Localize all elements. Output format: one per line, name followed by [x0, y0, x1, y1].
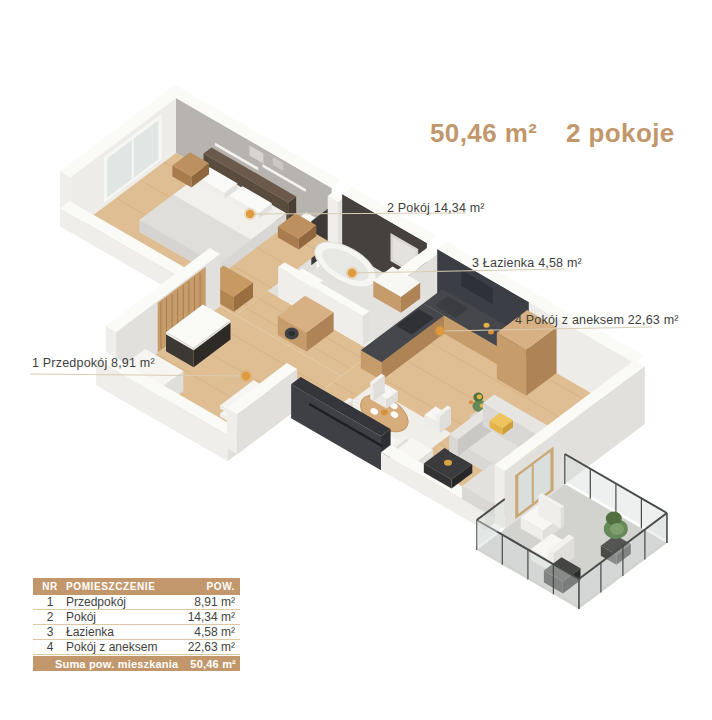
page-title-rooms: 2 pokoje [566, 118, 675, 149]
row-area: 4,58 m² [194, 625, 235, 639]
table-row: 2 Pokój 14,34 m² [33, 610, 240, 625]
footer-value: 50,46 m² [190, 658, 236, 670]
area-table-header: NR POMIESZCZENIE POW. [33, 578, 240, 595]
row-nr: 2 [38, 610, 62, 624]
col-header-pow: POW. [206, 581, 235, 592]
room-label-pokoj-z-aneksem: 4 Pokój z aneksem 22,63 m² [515, 313, 679, 327]
room-label-lazienka: 3 Łazienka 4,58 m² [472, 256, 582, 270]
footer-label: Suma pow. mieszkania [55, 658, 178, 670]
row-name: Pokój [62, 610, 188, 624]
row-name: Przedpokój [62, 595, 194, 609]
row-nr: 3 [38, 625, 62, 639]
table-row: 1 Przedpokój 8,91 m² [33, 595, 240, 610]
room-label-pokoj: 2 Pokój 14,34 m² [387, 201, 485, 215]
room-label-przedpokoj: 1 Przedpokój 8,91 m² [32, 356, 155, 370]
row-name: Łazienka [62, 625, 194, 639]
page-title-area: 50,46 m² [430, 118, 537, 149]
row-nr: 4 [38, 640, 62, 654]
floorplan-page: 50,46 m² 2 pokoje 1 Przedpokój 8,91 m² 2… [0, 0, 712, 720]
col-header-name: POMIESZCZENIE [62, 581, 206, 592]
col-header-nr: NR [38, 581, 62, 592]
table-row: 4 Pokój z aneksem 22,63 m² [33, 640, 240, 655]
row-area: 14,34 m² [188, 610, 235, 624]
table-row: 3 Łazienka 4,58 m² [33, 625, 240, 640]
area-table: NR POMIESZCZENIE POW. 1 Przedpokój 8,91 … [33, 578, 240, 671]
row-name: Pokój z aneksem [62, 640, 188, 654]
area-table-footer: Suma pow. mieszkania 50,46 m² [33, 656, 240, 671]
row-area: 22,63 m² [188, 640, 235, 654]
row-area: 8,91 m² [194, 595, 235, 609]
row-nr: 1 [38, 595, 62, 609]
